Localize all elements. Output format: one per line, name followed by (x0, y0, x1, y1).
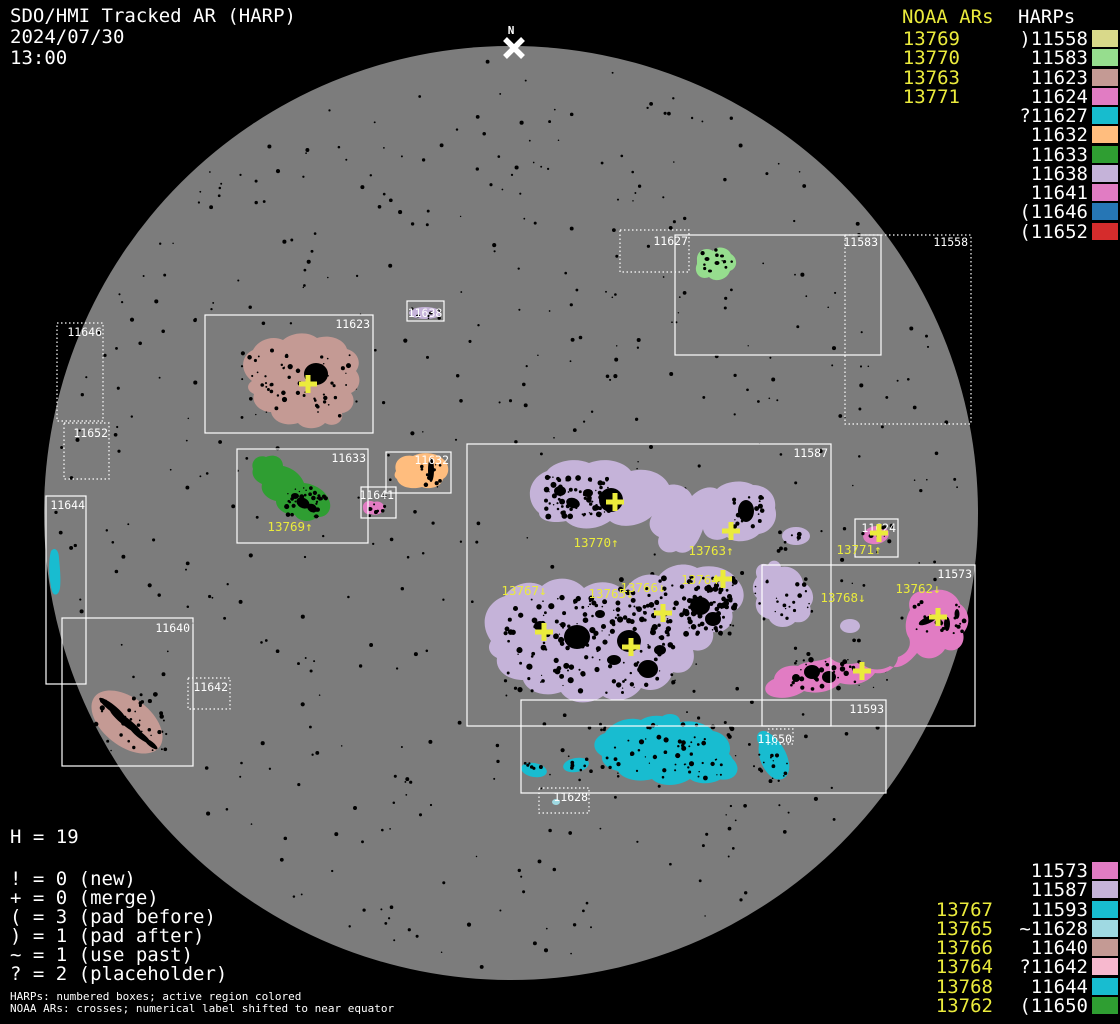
legend-swatch-11650 (1092, 997, 1118, 1014)
legend-swatch-11583 (1092, 49, 1118, 66)
stats-line-0: ! = 0 (new) (10, 869, 136, 889)
harp-box-label-11632: 11632 (414, 453, 449, 467)
harp-box-label-11633: 11633 (331, 451, 366, 465)
ar-blob-11641 (363, 501, 384, 515)
noaa-cross-label-13766: 13766↓ (620, 580, 665, 595)
legend-swatch-11593 (1092, 901, 1118, 918)
legend-harp-11587: 11587 (998, 880, 1088, 900)
legend-harps-header: HARPs (1018, 7, 1075, 27)
solar-disk-scene: 1155811627115831162311638116461165211633… (0, 0, 1120, 1024)
stats-line-5: ? = 2 (placeholder) (10, 964, 227, 984)
stats-line-1: + = 0 (merge) (10, 888, 159, 908)
harp-box-label-11644: 11644 (50, 498, 85, 512)
harp-box-label-11627: 11627 (653, 234, 688, 248)
legend-harp-11642: ?11642 (998, 957, 1088, 977)
time-label: 13:00 (10, 48, 67, 68)
legend-swatch-11624 (1092, 88, 1118, 105)
page-title: SDO/HMI Tracked AR (HARP) (10, 6, 296, 26)
harp-box-label-11623: 11623 (335, 317, 370, 331)
legend-swatch-11644 (1092, 978, 1118, 995)
legend-swatch-11633 (1092, 146, 1118, 163)
legend-noaa-header: NOAA ARs (902, 7, 994, 27)
date-label: 2024/07/30 (10, 27, 124, 47)
legend-swatch-11632 (1092, 126, 1118, 143)
legend-harp-11627: ?11627 (998, 106, 1088, 126)
legend-harp-11573: 11573 (998, 861, 1088, 881)
harp-box-label-11583: 11583 (843, 235, 878, 249)
legend-swatch-11646 (1092, 203, 1118, 220)
harp-box-label-11640: 11640 (155, 621, 190, 635)
legend-swatch-11573 (1092, 862, 1118, 879)
north-label: N (508, 24, 515, 37)
legend-noaa-13768: 13768 (898, 977, 993, 997)
legend-harp-11640: 11640 (998, 938, 1088, 958)
harp-box-label-11650: 11650 (757, 732, 792, 746)
noaa-cross-label-13762: 13762↓ (895, 581, 940, 596)
legend-swatch-11628 (1092, 920, 1118, 937)
legend-swatch-11641 (1092, 184, 1118, 201)
legend-swatch-11558 (1092, 30, 1118, 47)
legend-harp-11593: 11593 (998, 900, 1088, 920)
harp-box-label-11642: 11642 (193, 680, 228, 694)
legend-harp-11638: 11638 (998, 164, 1088, 184)
solar-disk (44, 46, 978, 980)
legend-harp-11633: 11633 (998, 145, 1088, 165)
harp-box-label-11641: 11641 (359, 488, 394, 502)
legend-swatch-11640 (1092, 939, 1118, 956)
legend-swatch-11642 (1092, 958, 1118, 975)
harp-box-label-11593: 11593 (849, 702, 884, 716)
legend-harp-11623: 11623 (998, 68, 1088, 88)
harp-map-figure: 1155811627115831162311638116461165211633… (0, 0, 1120, 1024)
harp-box-label-11587: 11587 (793, 446, 828, 460)
legend-harp-11624: 11624 (998, 87, 1088, 107)
noaa-cross-label-13770: 13770↑ (573, 535, 618, 550)
harp-box-label-11573: 11573 (937, 567, 972, 581)
legend-harp-11632: 11632 (998, 125, 1088, 145)
stats-line-4: ~ = 1 (use past) (10, 945, 193, 965)
stats-line-2: ( = 3 (pad before) (10, 907, 216, 927)
legend-noaa-13766: 13766 (898, 938, 993, 958)
legend-harp-11652: (11652 (998, 222, 1088, 242)
harp-box-label-11628: 11628 (553, 790, 588, 804)
legend-swatch-11623 (1092, 69, 1118, 86)
legend-swatch-11638 (1092, 165, 1118, 182)
legend-swatch-11627 (1092, 107, 1118, 124)
legend-noaa-13764: 13764 (898, 957, 993, 977)
legend-harp-11646: (11646 (998, 202, 1088, 222)
footer-line-1: NOAA ARs: crosses; numerical label shift… (10, 1003, 394, 1015)
harp-count: H = 19 (10, 827, 79, 847)
noaa-cross-label-13763: 13763↑ (688, 543, 733, 558)
legend-harp-11558: )11558 (998, 29, 1088, 49)
legend-harp-11644: 11644 (998, 977, 1088, 997)
legend-noaa-13769: 13769 (868, 29, 960, 49)
legend-noaa-13771: 13771 (868, 87, 960, 107)
harp-box-label-11638: 11638 (408, 306, 443, 320)
noaa-cross-label-13768: 13768↓ (820, 590, 865, 605)
legend-noaa-13767: 13767 (898, 900, 993, 920)
legend-noaa-13770: 13770 (868, 48, 960, 68)
noaa-cross-label-13771: 13771↑ (836, 542, 881, 557)
legend-swatch-11652 (1092, 223, 1118, 240)
legend-noaa-13762: 13762 (898, 996, 993, 1016)
noaa-cross-label-13767: 13767↓ (501, 583, 546, 598)
legend-harp-11641: 11641 (998, 183, 1088, 203)
legend-harp-11650: (11650 (998, 996, 1088, 1016)
legend-swatch-11587 (1092, 881, 1118, 898)
legend-noaa-13763: 13763 (868, 68, 960, 88)
legend-noaa-13765: 13765 (898, 919, 993, 939)
harp-box-label-11646: 11646 (67, 325, 102, 339)
ar-blob-11587 (840, 619, 860, 633)
stats-line-3: ) = 1 (pad after) (10, 926, 204, 946)
legend-harp-11628: ~11628 (998, 919, 1088, 939)
noaa-cross-label-13764: 13764 (681, 572, 719, 587)
legend-harp-11583: 11583 (998, 48, 1088, 68)
noaa-cross-label-13769: 13769↑ (267, 519, 312, 534)
harp-box-label-11558: 11558 (933, 235, 968, 249)
harp-box-label-11652: 11652 (73, 426, 108, 440)
